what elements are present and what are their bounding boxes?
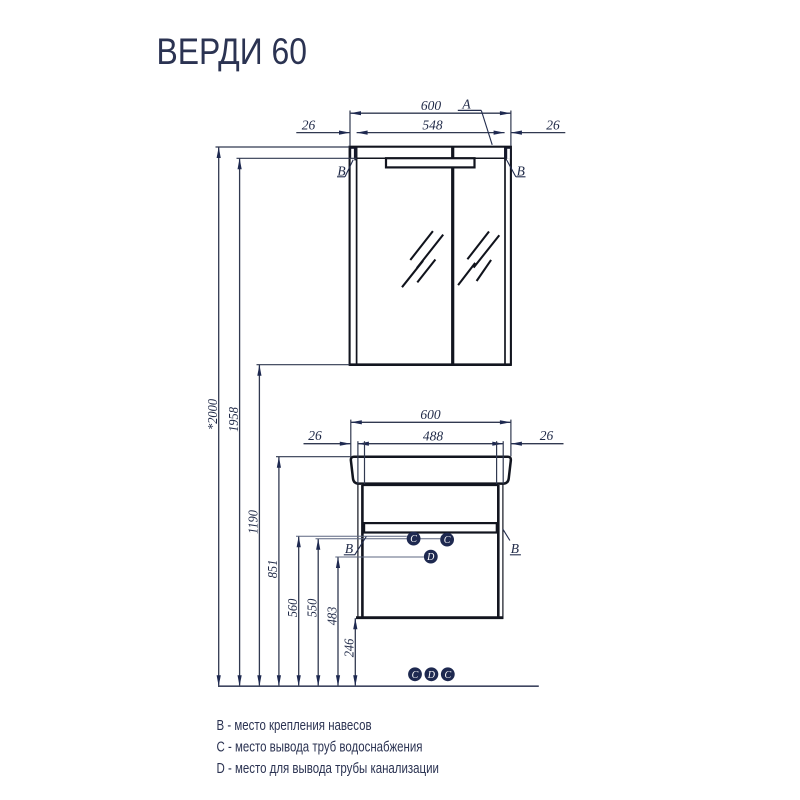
svg-text:D: D xyxy=(427,670,436,681)
svg-text:246: 246 xyxy=(341,638,357,657)
svg-text:C: C xyxy=(444,535,451,546)
svg-text:B: B xyxy=(511,541,519,556)
svg-text:D: D xyxy=(426,552,435,563)
svg-text:1958: 1958 xyxy=(225,407,241,432)
svg-text:851: 851 xyxy=(265,560,281,579)
svg-text:560: 560 xyxy=(285,598,301,617)
svg-text:D - место для вывода трубы кан: D - место для вывода трубы канализации xyxy=(217,760,439,777)
svg-text:C - место вывода труб водоснаб: C - место вывода труб водоснабжения xyxy=(217,738,423,755)
svg-text:B: B xyxy=(345,541,353,556)
svg-text:600: 600 xyxy=(420,407,441,422)
svg-text:B - место крепления навесов: B - место крепления навесов xyxy=(217,717,372,734)
svg-text:1190: 1190 xyxy=(245,510,261,534)
svg-text:C: C xyxy=(410,534,417,545)
svg-text:26: 26 xyxy=(308,428,322,443)
svg-text:*2000: *2000 xyxy=(205,398,221,430)
svg-text:26: 26 xyxy=(546,117,560,132)
svg-text:26: 26 xyxy=(302,117,316,132)
svg-text:ВЕРДИ 60: ВЕРДИ 60 xyxy=(157,31,307,73)
svg-text:26: 26 xyxy=(540,428,554,443)
svg-text:488: 488 xyxy=(423,428,444,443)
svg-text:548: 548 xyxy=(422,118,443,133)
svg-text:C: C xyxy=(444,670,451,681)
svg-text:A: A xyxy=(461,96,471,111)
svg-text:550: 550 xyxy=(304,598,320,617)
svg-text:483: 483 xyxy=(324,606,340,625)
svg-text:C: C xyxy=(412,670,419,681)
svg-text:600: 600 xyxy=(421,98,442,113)
